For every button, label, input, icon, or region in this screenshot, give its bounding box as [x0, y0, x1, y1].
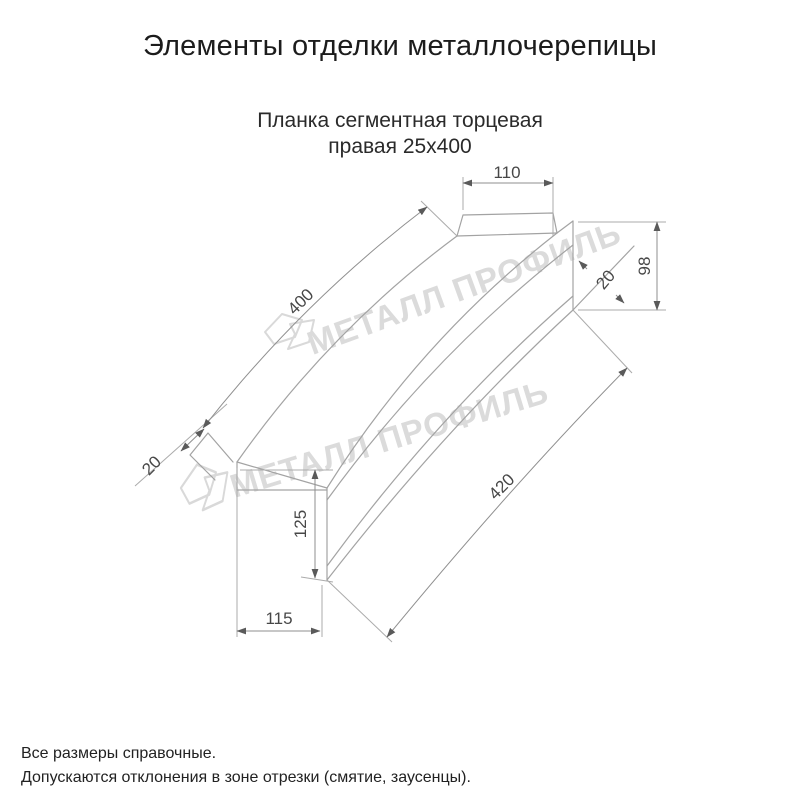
ext-420-lower [327, 580, 392, 642]
footer-notes: Все размеры справочные. Допускаются откл… [21, 742, 471, 790]
top-end-hem-flap [457, 213, 557, 236]
dim-label-top-end-width: 110 [493, 163, 520, 182]
catalog-drawing-page: Элементы отделки металлочерепицы Планка … [0, 0, 800, 800]
dim-label-bottom-end-width: 115 [265, 609, 292, 628]
dim-label-bottom-edge-length: 420 [485, 470, 518, 503]
technical-drawing: МЕТАЛЛ ПРОФИЛЬ МЕТАЛЛ ПРОФИЛЬ [0, 0, 800, 800]
brand-logo-icon [181, 465, 228, 511]
dim-label-top-edge-length: 400 [284, 285, 317, 318]
ext-400-upper [421, 201, 457, 236]
dim-line-20-left [181, 429, 204, 451]
dim-line-20-right-b [616, 295, 624, 303]
footer-note-line2: Допускаются отклонения в зоне отрезки (с… [21, 766, 471, 790]
dim-label-left-end-hem: 20 [138, 452, 165, 479]
dim-label-right-end-height: 98 [635, 257, 654, 276]
footer-note-line1: Все размеры справочные. [21, 742, 471, 766]
top-end-cut-edge [457, 233, 557, 236]
dim-label-right-end-hem: 20 [592, 266, 619, 293]
dim-label-left-end-height: 125 [291, 510, 310, 538]
ext-420-upper [573, 310, 632, 373]
